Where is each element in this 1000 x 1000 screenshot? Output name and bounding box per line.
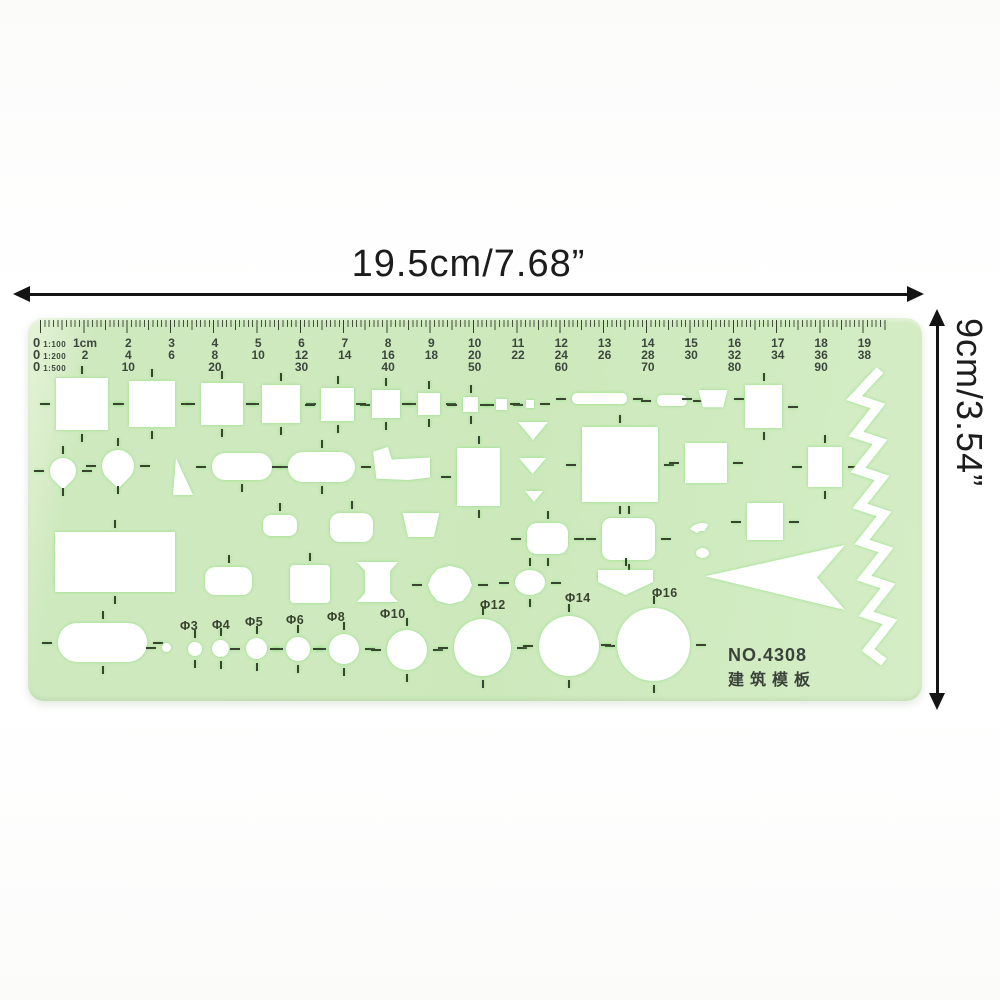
diameter-label: Φ4 bbox=[212, 618, 230, 632]
registration-tick bbox=[406, 674, 408, 682]
registration-tick bbox=[792, 466, 802, 468]
zigzag-cutout bbox=[840, 368, 898, 668]
template-cutout-slot bbox=[572, 393, 627, 404]
ruler-scale-column: 2410 bbox=[107, 337, 149, 373]
registration-tick bbox=[256, 663, 258, 671]
registration-tick bbox=[114, 520, 116, 528]
ruler-scale-columns: 1cm2241036482051061230714816409181020501… bbox=[28, 337, 922, 375]
template-cutout-circle bbox=[387, 630, 427, 670]
ruler-scale-column: 102050 bbox=[454, 337, 496, 373]
registration-tick bbox=[551, 582, 561, 584]
registration-tick bbox=[86, 465, 96, 467]
registration-tick bbox=[228, 555, 230, 563]
registration-tick bbox=[788, 406, 798, 408]
registration-tick bbox=[625, 558, 627, 566]
registration-tick bbox=[470, 416, 472, 424]
template-cutout-lens bbox=[428, 565, 472, 605]
template-cutout-sq bbox=[56, 378, 108, 430]
registration-tick bbox=[221, 371, 223, 379]
registration-tick bbox=[221, 429, 223, 437]
registration-tick bbox=[824, 435, 826, 443]
ruler-scale-column: 1734 bbox=[757, 337, 799, 373]
template-cutout-circle bbox=[162, 643, 171, 652]
registration-tick bbox=[433, 649, 443, 651]
registration-tick bbox=[140, 465, 150, 467]
registration-tick bbox=[279, 503, 281, 511]
template-cutout-boot bbox=[373, 447, 430, 480]
template-cutout-slot bbox=[205, 567, 252, 595]
ruler-scale-column: 122460 bbox=[540, 337, 582, 373]
registration-tick bbox=[734, 398, 744, 400]
diameter-label: Φ3 bbox=[180, 619, 198, 633]
height-dimension-label: 9cm/3.54” bbox=[948, 318, 990, 700]
ruler-tick-marks bbox=[40, 320, 888, 333]
registration-tick bbox=[272, 466, 282, 468]
ruler-scale-column: 1122 bbox=[497, 337, 539, 373]
registration-tick bbox=[470, 385, 472, 393]
template-cutout-trir bbox=[173, 458, 193, 495]
registration-tick bbox=[478, 436, 480, 444]
registration-tick bbox=[428, 381, 430, 389]
ruler-scale-column: 4820 bbox=[194, 337, 236, 373]
template-cutout-sq bbox=[496, 399, 507, 410]
registration-tick bbox=[789, 521, 799, 523]
ruler-scale-column: 918 bbox=[410, 337, 452, 373]
registration-tick bbox=[81, 366, 83, 374]
registration-tick bbox=[402, 403, 412, 405]
height-arrow-up-icon bbox=[929, 309, 945, 326]
template-cutout-sq bbox=[747, 503, 783, 540]
ruler-scale-column: 1326 bbox=[584, 337, 626, 373]
template-cutout-circle bbox=[454, 619, 511, 676]
registration-tick bbox=[540, 403, 550, 405]
template-cutout-circle bbox=[246, 638, 267, 659]
template-cutout-sq bbox=[290, 565, 330, 603]
registration-tick bbox=[529, 558, 531, 566]
height-arrow-down-icon bbox=[929, 693, 945, 710]
registration-tick bbox=[321, 486, 323, 494]
template-cutout-arc bbox=[688, 523, 714, 545]
registration-tick bbox=[246, 403, 256, 405]
template-cutout-circle bbox=[539, 616, 599, 676]
template-cutout-sq bbox=[808, 447, 842, 487]
template-cutout-circle bbox=[188, 642, 202, 656]
diameter-label: Φ8 bbox=[327, 610, 345, 624]
ruler-cm-ticks bbox=[40, 320, 888, 333]
registration-tick bbox=[547, 558, 549, 566]
template-cutout-circle bbox=[286, 637, 310, 661]
registration-tick bbox=[337, 376, 339, 384]
registration-tick bbox=[385, 422, 387, 430]
registration-tick bbox=[619, 415, 621, 423]
template-cutout-slot bbox=[263, 515, 297, 536]
template-cutout-sq bbox=[372, 390, 400, 418]
registration-tick bbox=[82, 470, 92, 472]
ruler-scale-column: 81640 bbox=[367, 337, 409, 373]
registration-tick bbox=[321, 440, 323, 448]
registration-tick bbox=[641, 400, 651, 402]
registration-tick bbox=[297, 665, 299, 673]
product-photo: 19.5cm/7.68” 9cm/3.54” 01:10001:20001:50… bbox=[0, 0, 1000, 1000]
registration-tick bbox=[441, 476, 451, 478]
template-cutout-shield bbox=[598, 570, 653, 595]
registration-tick bbox=[628, 506, 630, 514]
registration-tick bbox=[40, 403, 50, 405]
model-number: NO.4308 bbox=[728, 645, 858, 666]
registration-tick bbox=[337, 425, 339, 433]
registration-tick bbox=[619, 506, 621, 514]
registration-tick bbox=[81, 434, 83, 442]
template-cutout-slot bbox=[212, 453, 272, 480]
registration-tick bbox=[351, 501, 353, 509]
registration-tick bbox=[568, 680, 570, 688]
registration-tick bbox=[117, 486, 119, 494]
registration-tick bbox=[280, 427, 282, 435]
template-cutout-sq bbox=[685, 443, 727, 483]
template-cutout-drop bbox=[102, 450, 134, 482]
template-cutout-sq bbox=[321, 388, 354, 421]
registration-tick bbox=[343, 668, 345, 676]
template-cutout-sq bbox=[129, 381, 175, 427]
registration-tick bbox=[661, 538, 671, 540]
registration-tick bbox=[763, 373, 765, 381]
registration-tick bbox=[361, 466, 371, 468]
registration-tick bbox=[102, 611, 104, 619]
diameter-label: Φ6 bbox=[286, 613, 304, 627]
registration-tick bbox=[478, 510, 480, 518]
template-cutout-spool bbox=[355, 562, 400, 602]
ruler-scale-column: 1530 bbox=[670, 337, 712, 373]
template-cutout-sq bbox=[201, 383, 243, 425]
registration-tick bbox=[102, 666, 104, 674]
registration-tick bbox=[146, 647, 156, 649]
registration-tick bbox=[824, 491, 826, 499]
template-cutout-arrowl bbox=[705, 545, 845, 610]
ruler-scale-column: 36 bbox=[151, 337, 193, 373]
registration-tick bbox=[482, 680, 484, 688]
registration-tick bbox=[305, 404, 315, 406]
registration-tick bbox=[523, 645, 533, 647]
template-cutout-sq bbox=[463, 397, 478, 412]
diameter-label: Φ12 bbox=[480, 598, 506, 612]
width-dimension-line bbox=[22, 293, 915, 296]
registration-tick bbox=[406, 618, 408, 626]
registration-tick bbox=[568, 604, 570, 612]
template-cutout-sq bbox=[457, 448, 500, 506]
registration-tick bbox=[385, 378, 387, 386]
template-cutout-slot bbox=[330, 513, 373, 542]
registration-tick bbox=[601, 644, 611, 646]
ruler-scale-column: 1cm2 bbox=[64, 337, 106, 373]
registration-tick bbox=[196, 466, 206, 468]
width-arrow-left-icon bbox=[13, 286, 30, 302]
registration-tick bbox=[529, 599, 531, 607]
template-cutout-circle bbox=[515, 570, 545, 595]
template-cutout-circle bbox=[329, 634, 359, 664]
registration-tick bbox=[556, 398, 566, 400]
ruler-scale-column: 510 bbox=[237, 337, 279, 373]
template-cutout-trap bbox=[698, 390, 728, 408]
height-dimension-line bbox=[936, 318, 939, 700]
width-arrow-right-icon bbox=[907, 286, 924, 302]
registration-tick bbox=[241, 484, 243, 492]
registration-tick bbox=[151, 431, 153, 439]
template-cutout-slot bbox=[602, 518, 655, 560]
registration-tick bbox=[669, 462, 679, 464]
template-cutout-sq bbox=[745, 385, 782, 428]
diameter-label: Φ14 bbox=[565, 591, 591, 605]
registration-tick bbox=[574, 538, 584, 540]
template-cutout-slot bbox=[288, 452, 355, 482]
registration-tick bbox=[313, 648, 323, 650]
registration-tick bbox=[113, 403, 123, 405]
registration-tick bbox=[34, 470, 44, 472]
template-cutout-sq bbox=[418, 393, 440, 415]
registration-tick bbox=[511, 538, 521, 540]
diameter-label: Φ5 bbox=[245, 615, 263, 629]
registration-tick bbox=[356, 403, 366, 405]
template-cutout-slot bbox=[527, 523, 568, 554]
registration-tick bbox=[62, 446, 64, 454]
registration-tick bbox=[733, 462, 743, 464]
registration-tick bbox=[510, 403, 520, 405]
registration-tick bbox=[696, 644, 706, 646]
template-cutout-circle bbox=[212, 640, 229, 657]
registration-tick bbox=[194, 660, 196, 668]
diameter-label: Φ10 bbox=[380, 607, 406, 621]
registration-tick bbox=[270, 648, 280, 650]
ruler-scale-column: 183690 bbox=[800, 337, 842, 373]
registration-tick bbox=[185, 403, 195, 405]
template-cutout-sq bbox=[55, 532, 175, 592]
registration-tick bbox=[220, 661, 222, 669]
registration-tick bbox=[682, 398, 692, 400]
diameter-label: Φ16 bbox=[652, 586, 678, 600]
template-cutout-sq bbox=[526, 400, 534, 408]
registration-tick bbox=[371, 649, 381, 651]
width-dimension-label: 19.5cm/7.68” bbox=[20, 243, 917, 286]
registration-tick bbox=[478, 584, 488, 586]
registration-tick bbox=[480, 404, 490, 406]
template-cutout-circle bbox=[617, 608, 690, 681]
template-cutout-sq bbox=[262, 385, 300, 423]
ruler-scale-column: 61230 bbox=[281, 337, 323, 373]
registration-tick bbox=[230, 648, 240, 650]
template-cutout-slot bbox=[657, 395, 687, 406]
template-body: 01:10001:20001:500 1cm224103648205106123… bbox=[28, 318, 922, 701]
ruler-scale-column: 163280 bbox=[714, 337, 756, 373]
registration-tick bbox=[438, 647, 448, 649]
registration-tick bbox=[586, 538, 596, 540]
template-cutout-sq bbox=[582, 427, 658, 502]
ruler-scale-column: 142870 bbox=[627, 337, 669, 373]
registration-tick bbox=[566, 464, 576, 466]
registration-tick bbox=[547, 511, 549, 519]
registration-tick bbox=[447, 404, 457, 406]
model-name: 建筑模板 bbox=[728, 666, 878, 690]
registration-tick bbox=[280, 373, 282, 381]
registration-tick bbox=[114, 596, 116, 604]
registration-tick bbox=[499, 582, 509, 584]
registration-tick bbox=[62, 488, 64, 496]
template-cutout-slot bbox=[58, 623, 147, 662]
ruler-scale-column: 714 bbox=[324, 337, 366, 373]
template-cutout-tri bbox=[518, 422, 548, 440]
template-cutout-drop bbox=[50, 458, 76, 484]
registration-tick bbox=[412, 584, 422, 586]
registration-tick bbox=[151, 369, 153, 377]
registration-tick bbox=[731, 521, 741, 523]
registration-tick bbox=[309, 553, 311, 561]
template-cutout-tri bbox=[525, 491, 543, 502]
template-cutout-tri bbox=[519, 458, 546, 474]
registration-tick bbox=[653, 685, 655, 693]
registration-tick bbox=[117, 438, 119, 446]
registration-tick bbox=[42, 642, 52, 644]
template-cutout-trap bbox=[402, 513, 440, 538]
registration-tick bbox=[428, 419, 430, 427]
registration-tick bbox=[763, 432, 765, 440]
